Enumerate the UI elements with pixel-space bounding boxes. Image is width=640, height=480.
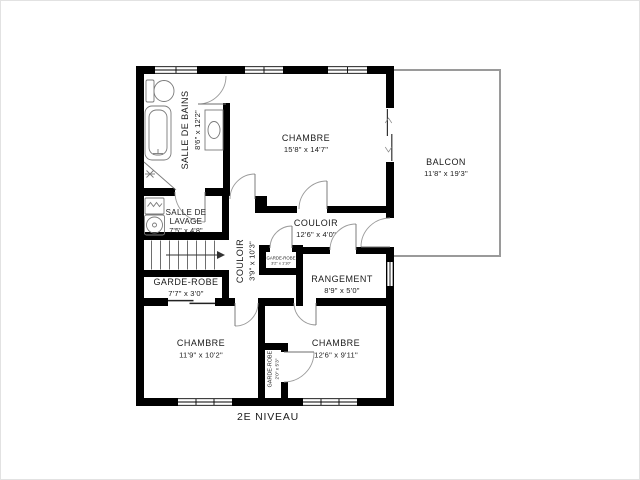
wall-segment: [281, 343, 288, 352]
door-swing: [230, 174, 255, 199]
room-name: SALLE DE BAINS: [180, 91, 190, 170]
room-dims: 12'6" x 9'11": [314, 351, 358, 360]
room-name: GARDE-ROBE: [153, 277, 218, 287]
stairs-direction-arrow: [166, 251, 225, 259]
room-label-garde-robe-principal: GARDE-ROBE 7'7" x 3'0": [153, 277, 218, 298]
room-label-rangement: RANGEMENT 8'9" x 5'0": [311, 274, 373, 295]
wall-segment: [281, 382, 288, 398]
door-swing: [294, 303, 316, 325]
floor-plan-page: SALLE DE BAINS 8'6" x 12'2" CHAMBRE 15'8…: [0, 0, 640, 480]
door-swing: [284, 352, 314, 382]
room-name: COULOIR: [294, 218, 338, 228]
room-dims: 7'5" x 4'8": [169, 226, 203, 235]
corner-shower: [144, 162, 176, 190]
room-label-balcon: BALCON 11'8" x 19'3": [424, 157, 468, 178]
window: [245, 66, 283, 74]
room-name: CHAMBRE: [177, 338, 225, 348]
room-name: GARDE-ROBE: [268, 350, 274, 387]
room-dims: 3'2" x 1'10": [271, 261, 291, 266]
room-name: CHAMBRE: [282, 133, 330, 143]
room-name: COULOIR: [235, 239, 245, 283]
wall-segment: [215, 298, 235, 306]
wall-segment: [143, 270, 222, 277]
door-swing: [299, 181, 327, 209]
room-dims: 2'0" x 5'3": [275, 358, 281, 379]
wall-segment: [303, 247, 330, 254]
room-dims: 11'9" x 10'2": [179, 351, 223, 360]
floor-plan-drawing: SALLE DE BAINS 8'6" x 12'2" CHAMBRE 15'8…: [0, 0, 640, 480]
room-dims: 8'6" x 12'2": [193, 110, 202, 150]
window: [178, 398, 232, 406]
vanity-sink: [205, 110, 223, 150]
wall-segment: [356, 247, 386, 254]
wall-segment: [296, 245, 303, 306]
room-dims: 15'8" x 14'7": [284, 145, 328, 154]
door-swing: [270, 226, 292, 248]
wall-segment: [143, 298, 168, 306]
stairs: [152, 241, 226, 270]
room-label-couloir-horizontal: COULOIR 12'6" x 4'0": [294, 218, 338, 239]
window: [328, 66, 367, 74]
wall-segment: [258, 306, 265, 398]
wall-segment: [327, 206, 386, 213]
wall-segment: [223, 103, 230, 190]
door-swing: [235, 303, 258, 326]
wall-segment: [136, 66, 144, 406]
laundry-tub: [145, 198, 164, 214]
sliding-closet-door: [168, 301, 215, 304]
window: [387, 262, 394, 286]
room-label-salle-de-lavage: SALLE DE LAVAGE 7'5" x 4'8": [166, 208, 207, 235]
toilet: [146, 80, 174, 102]
room-name: RANGEMENT: [311, 274, 373, 284]
door-swing: [198, 76, 226, 104]
room-name: LAVAGE: [170, 217, 203, 226]
doors: [175, 76, 390, 382]
room-label-chambre-2: CHAMBRE 11'9" x 10'2": [177, 338, 225, 360]
room-dims: 11'8" x 19'3": [424, 169, 468, 178]
room-name: SALLE DE: [166, 208, 207, 217]
room-label-garde-robe-couloir: GARDE-ROBE 3'2" x 1'10": [267, 256, 296, 266]
wall-segment: [316, 298, 386, 306]
room-label-chambre-3: CHAMBRE 12'6" x 9'11": [312, 338, 360, 360]
balcony-door-opening: [386, 218, 394, 247]
wall-segment: [205, 188, 230, 196]
room-label-chambre-1: CHAMBRE 15'8" x 14'7": [282, 133, 330, 154]
floor-title: 2E NIVEAU: [237, 411, 299, 423]
wall-segment: [258, 298, 294, 306]
wall-segment: [262, 206, 297, 213]
wall-segment: [143, 188, 175, 196]
room-name: CHAMBRE: [312, 338, 360, 348]
room-name: BALCON: [426, 157, 466, 167]
bathtub: [145, 106, 171, 160]
room-dims: 3'9" x 10'3": [248, 241, 257, 281]
room-label-garde-robe-chambre: GARDE-ROBE 2'0" x 5'3": [268, 350, 281, 387]
window: [303, 398, 357, 406]
room-dims: 12'6" x 4'0": [296, 230, 336, 239]
room-dims: 8'9" x 5'0": [324, 286, 360, 295]
wall-segment: [222, 196, 229, 240]
window: [155, 66, 197, 74]
door-swing: [361, 218, 390, 247]
room-label-salle-de-bains: SALLE DE BAINS 8'6" x 12'2": [180, 91, 202, 170]
room-dims: 7'7" x 3'0": [168, 289, 204, 298]
room-label-couloir-vertical: COULOIR 3'9" x 10'3": [235, 239, 257, 283]
